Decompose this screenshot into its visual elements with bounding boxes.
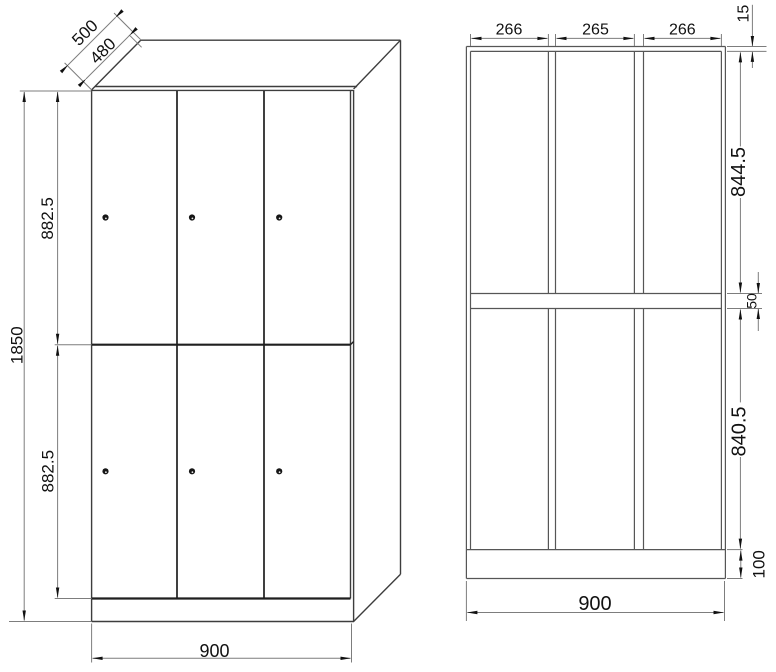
- svg-text:266: 266: [496, 22, 523, 39]
- svg-text:1850: 1850: [8, 326, 27, 364]
- svg-text:840.5: 840.5: [729, 406, 751, 456]
- svg-text:266: 266: [669, 22, 696, 39]
- svg-text:15: 15: [736, 5, 753, 23]
- svg-text:265: 265: [582, 22, 609, 39]
- svg-text:50: 50: [744, 293, 760, 309]
- svg-text:882.5: 882.5: [38, 197, 57, 240]
- svg-text:882.5: 882.5: [39, 450, 58, 493]
- svg-text:844.5: 844.5: [728, 147, 750, 197]
- svg-text:900: 900: [578, 593, 611, 615]
- svg-text:100: 100: [749, 550, 768, 578]
- svg-text:900: 900: [199, 641, 229, 661]
